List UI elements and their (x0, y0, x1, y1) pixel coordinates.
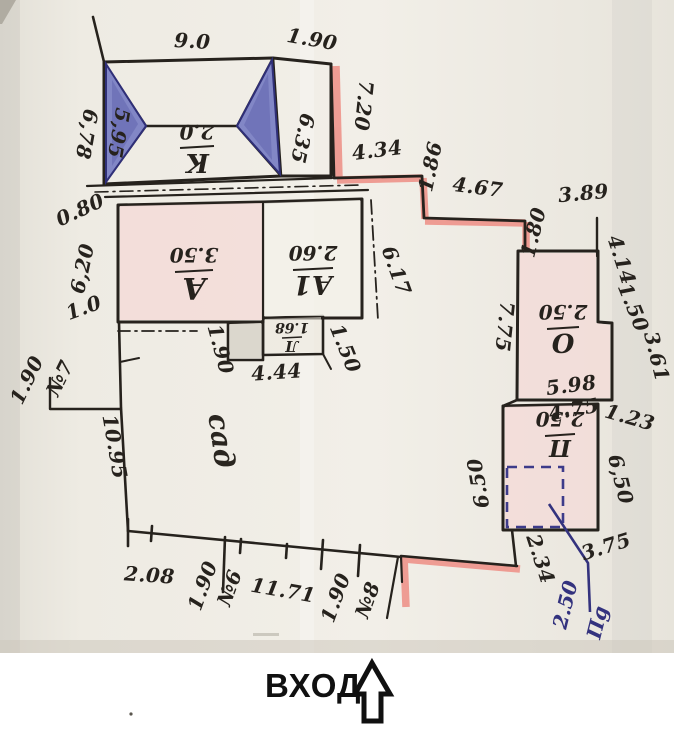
room-label-a1: А1 2.60 (289, 241, 339, 299)
svg-text:О: О (551, 327, 574, 357)
scanned-site-plan-page: 9.0 1.90 6,78 5,95 6.35 7.20 4.34 1.86 4… (0, 0, 674, 748)
dim-k-top: 9.0 (174, 28, 212, 54)
dim-o-top: 3.89 (557, 179, 610, 207)
svg-text:Л: Л (285, 337, 300, 355)
svg-text:П: П (548, 434, 572, 461)
dim-bottom-1: 2.08 (122, 561, 175, 589)
svg-text:3.50: 3.50 (170, 243, 219, 267)
svg-text:1.68: 1.68 (275, 319, 309, 335)
svg-text:2.60: 2.60 (289, 241, 339, 265)
svg-text:2.50: 2.50 (539, 300, 589, 324)
svg-text:2.0: 2.0 (180, 120, 216, 144)
svg-text:К: К (185, 147, 210, 177)
dim-annex-bottom: 4.44 (250, 358, 302, 385)
svg-text:2.50: 2.50 (536, 407, 586, 431)
entrance-label: ВХОД (265, 667, 361, 704)
svg-text:А1: А1 (293, 269, 334, 299)
boundary-southeast-corner (401, 556, 402, 582)
svg-text:А: А (182, 270, 208, 305)
site-plan-drawing: 9.0 1.90 6,78 5,95 6.35 7.20 4.34 1.86 4… (0, 0, 674, 748)
